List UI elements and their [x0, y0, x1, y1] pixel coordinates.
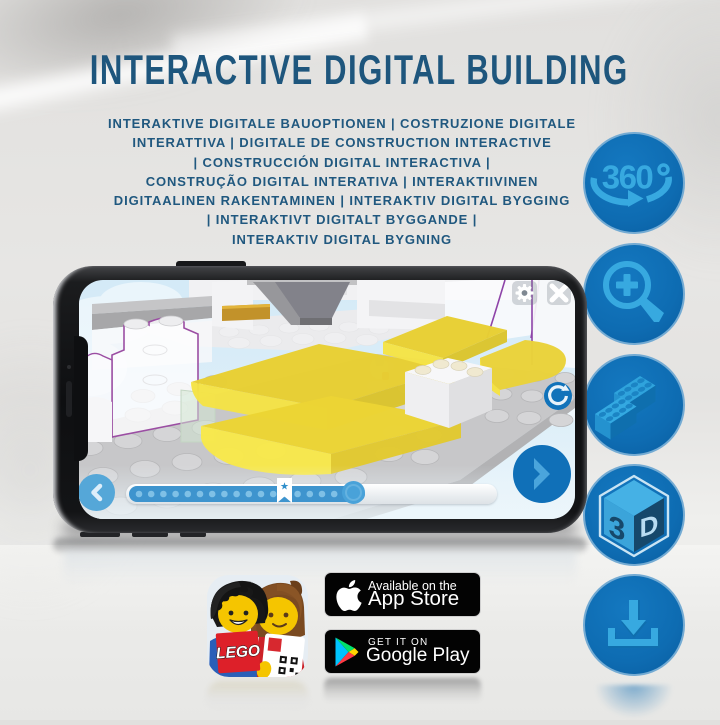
svg-text:★: ★	[280, 482, 289, 493]
svg-text:3: 3	[609, 508, 626, 548]
svg-text:360: 360	[602, 159, 653, 196]
svg-text:LEGO: LEGO	[216, 642, 261, 662]
svg-text:D: D	[640, 509, 659, 544]
